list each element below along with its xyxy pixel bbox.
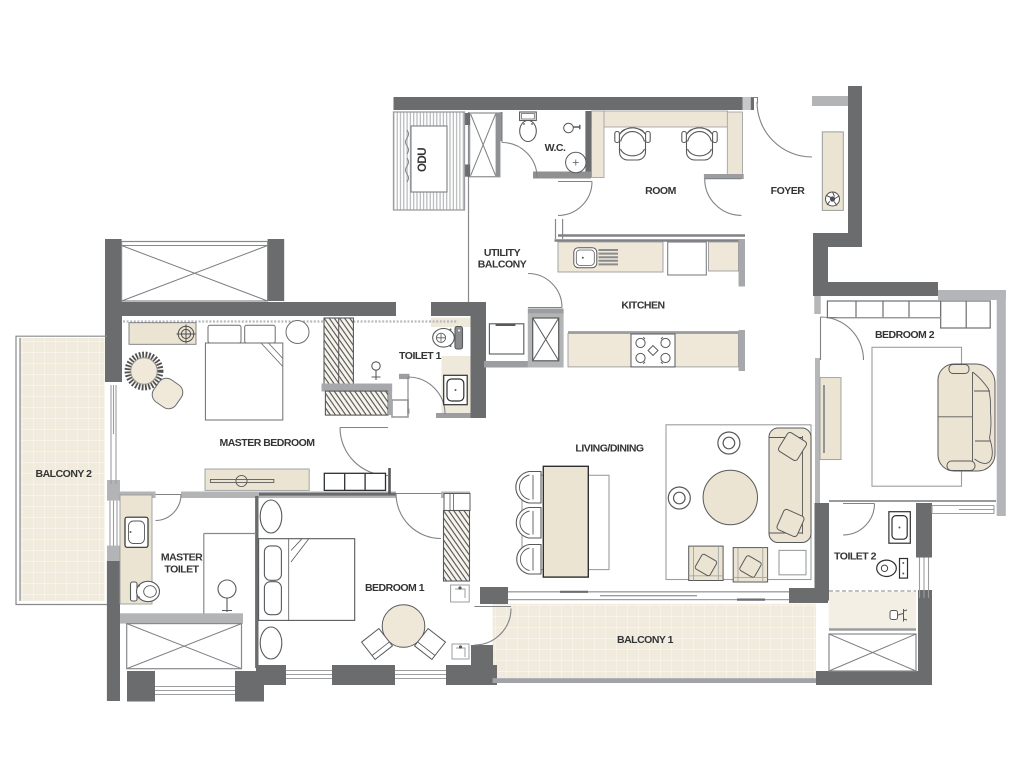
svg-text:MASTER: MASTER [161,552,203,564]
svg-text:LIVING/DINING: LIVING/DINING [575,443,644,455]
svg-text:KITCHEN: KITCHEN [621,300,664,312]
svg-text:BEDROOM 1: BEDROOM 1 [365,582,425,594]
svg-text:ROOM: ROOM [645,185,676,197]
svg-text:BEDROOM 2: BEDROOM 2 [875,329,935,341]
svg-text:UTILITY: UTILITY [484,247,521,259]
svg-text:BALCONY 2: BALCONY 2 [36,468,93,480]
svg-text:TOILET: TOILET [164,564,199,576]
svg-text:W.C.: W.C. [545,142,566,154]
svg-text:MASTER BEDROOM: MASTER BEDROOM [219,437,315,449]
svg-text:TOILET 1: TOILET 1 [399,350,442,362]
svg-text:FOYER: FOYER [771,185,806,197]
svg-text:ODU: ODU [417,148,429,172]
svg-text:BALCONY 1: BALCONY 1 [617,634,674,646]
svg-text:BALCONY: BALCONY [478,259,527,271]
svg-text:TOILET 2: TOILET 2 [834,551,877,563]
